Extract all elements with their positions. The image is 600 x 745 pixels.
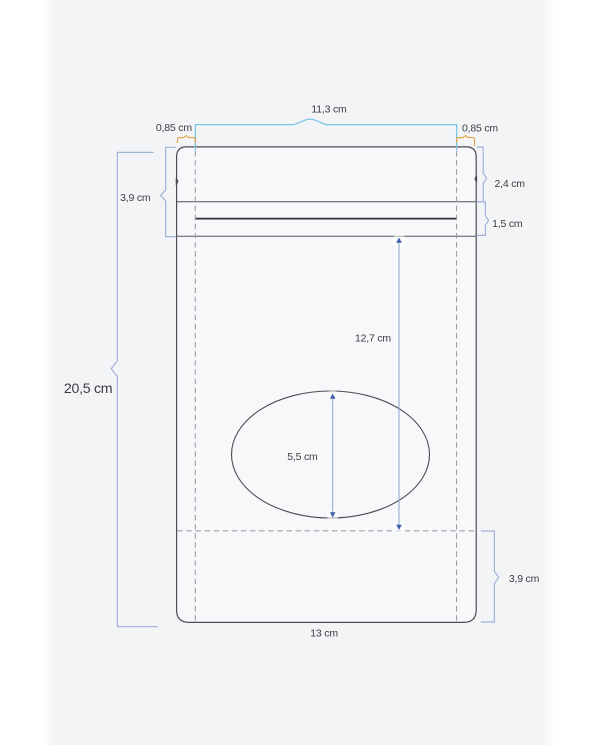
svg-text:13 cm: 13 cm <box>310 628 338 640</box>
svg-text:20,5 cm: 20,5 cm <box>64 381 112 397</box>
svg-text:12,7 cm: 12,7 cm <box>355 332 391 344</box>
svg-text:2,4 cm: 2,4 cm <box>495 178 526 190</box>
svg-text:5,5 cm: 5,5 cm <box>287 451 318 463</box>
svg-text:0,85 cm: 0,85 cm <box>462 123 498 135</box>
svg-text:1,5 cm: 1,5 cm <box>492 218 523 230</box>
svg-text:3,9 cm: 3,9 cm <box>509 573 540 585</box>
svg-text:11,3 cm: 11,3 cm <box>311 104 347 116</box>
svg-text:3,9 cm: 3,9 cm <box>120 192 151 204</box>
svg-text:0,85 cm: 0,85 cm <box>156 122 192 134</box>
